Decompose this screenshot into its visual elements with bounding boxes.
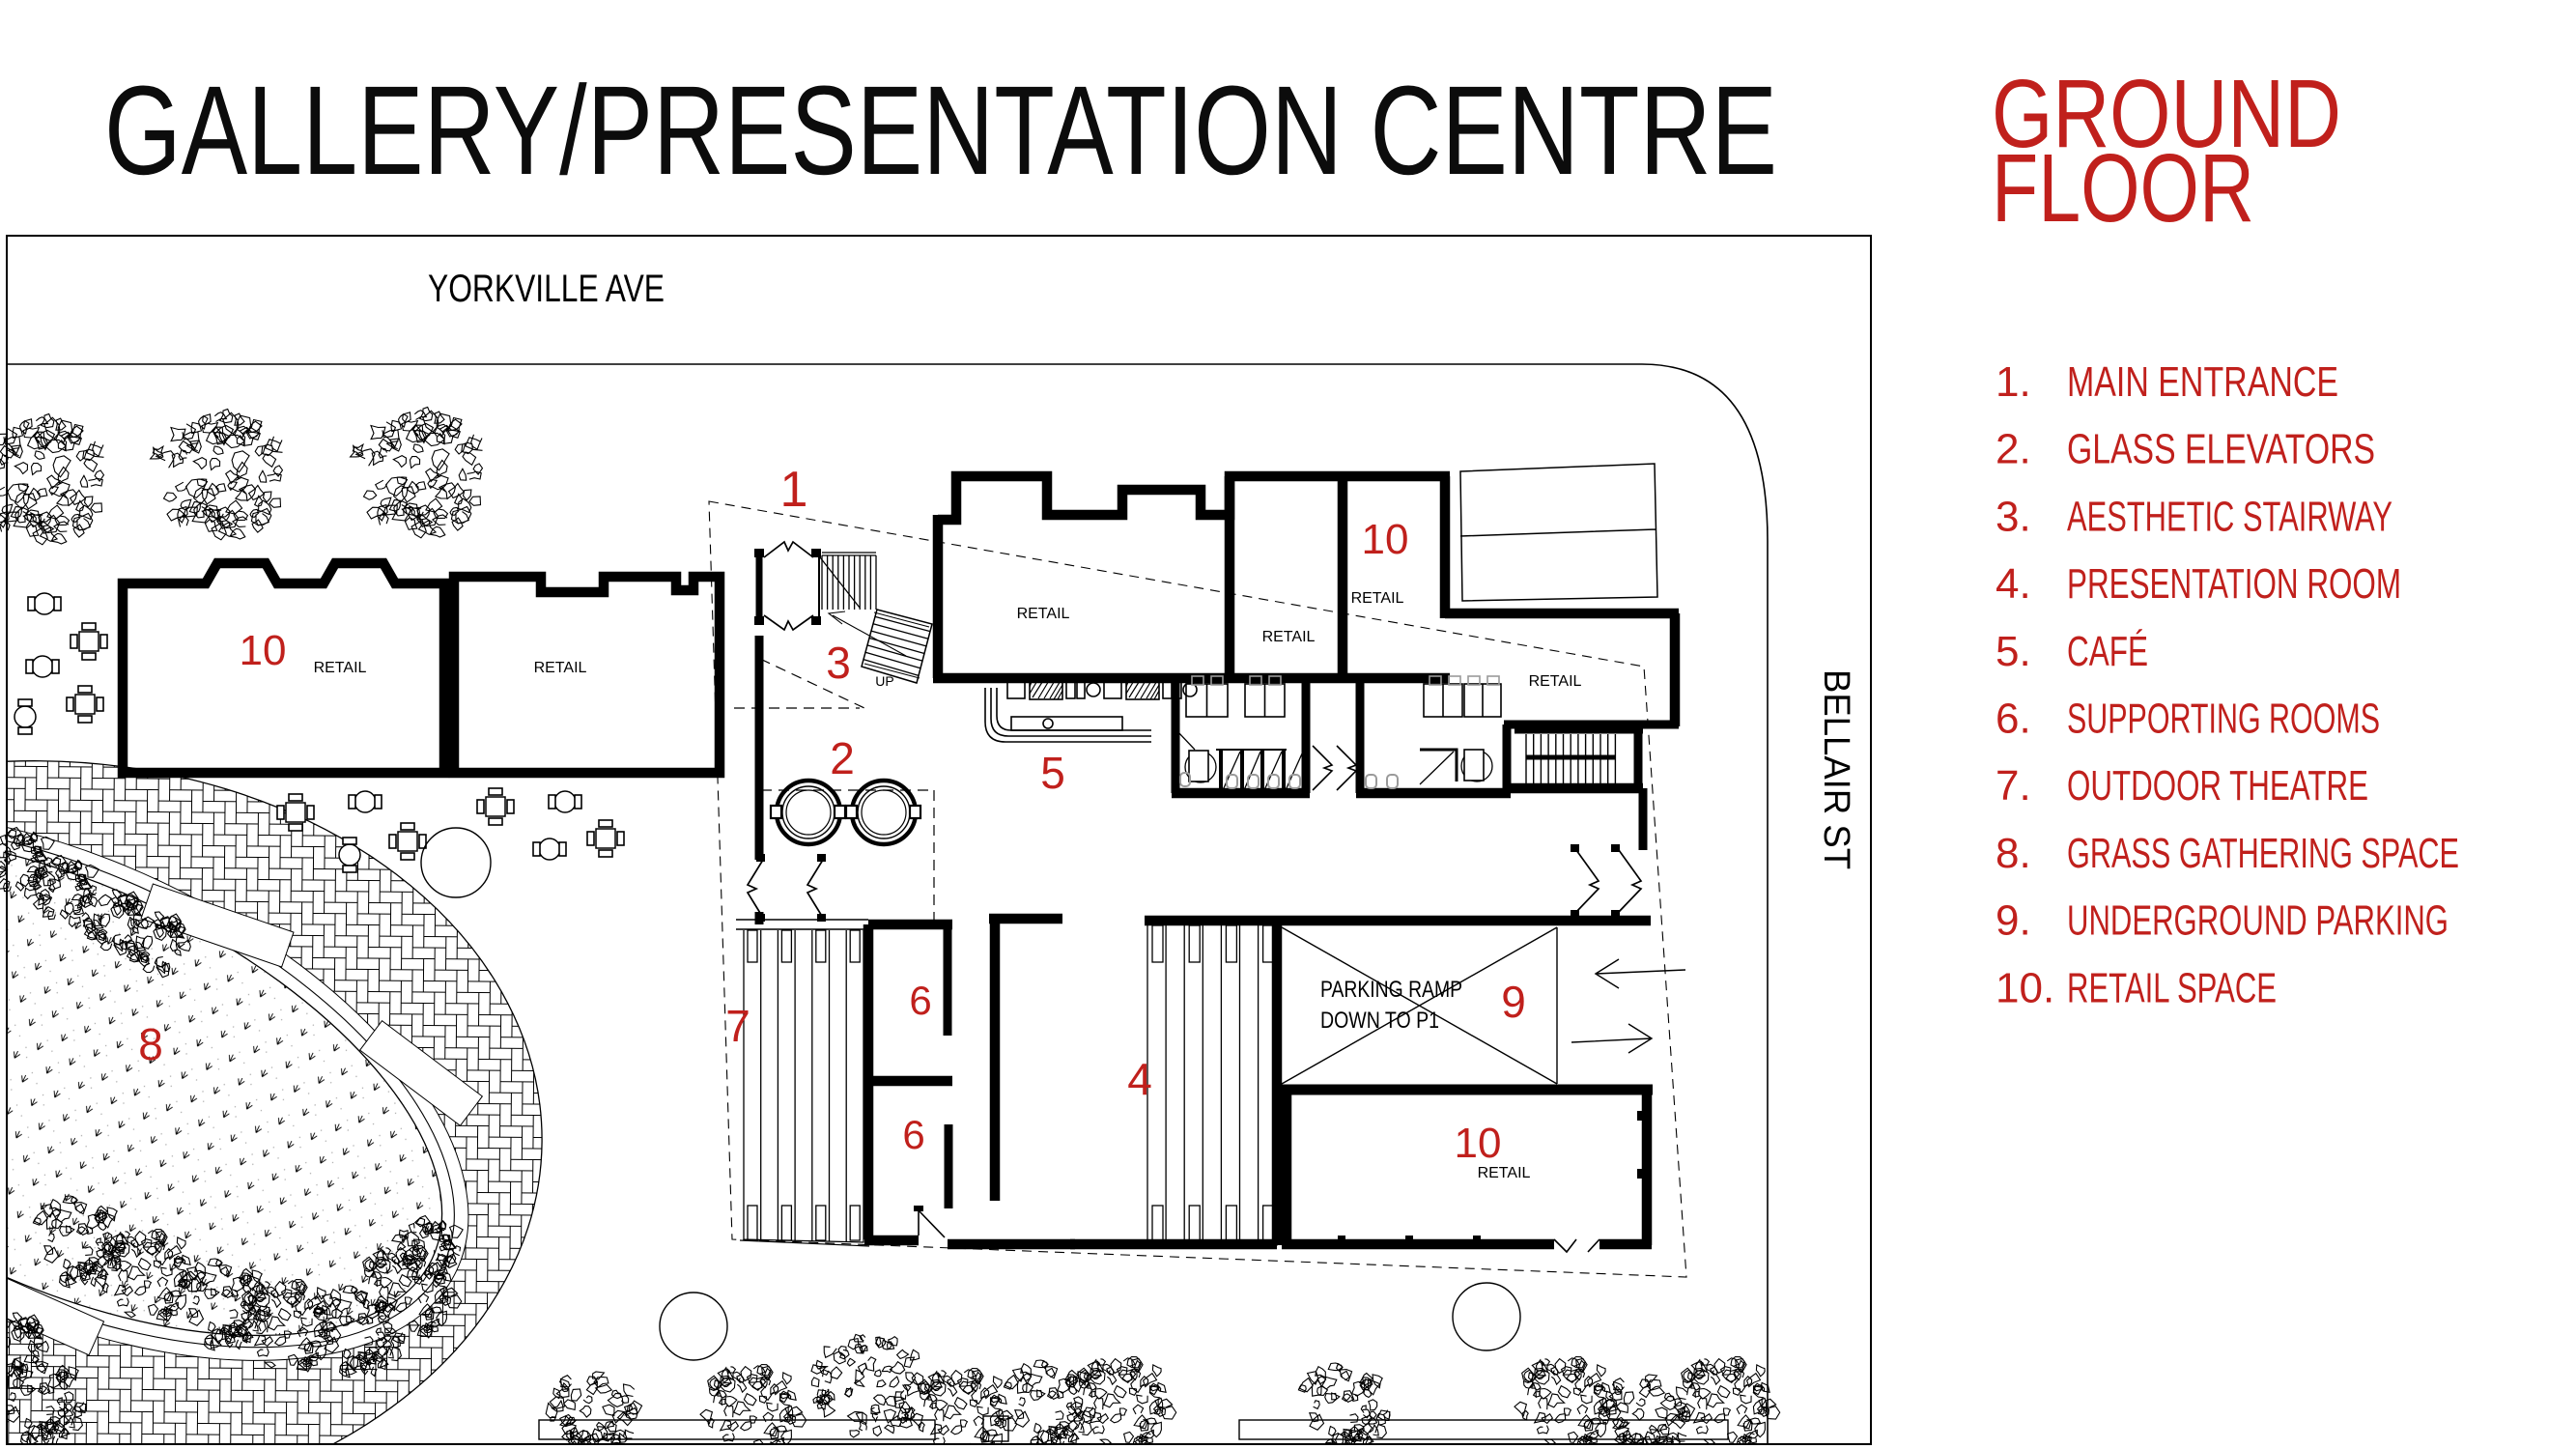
svg-text:DOWN TO P1: DOWN TO P1 — [1320, 1008, 1439, 1034]
svg-text:RETAIL: RETAIL — [534, 660, 587, 676]
svg-text:PARKING RAMP: PARKING RAMP — [1320, 977, 1462, 1003]
svg-text:GRASS GATHERING SPACE: GRASS GATHERING SPACE — [2067, 830, 2459, 877]
svg-text:7: 7 — [725, 1001, 750, 1051]
svg-text:5: 5 — [1040, 748, 1065, 798]
svg-text:8.: 8. — [1996, 830, 2031, 877]
svg-text:2: 2 — [830, 733, 855, 783]
svg-text:7.: 7. — [1996, 762, 2031, 810]
svg-text:GLASS ELEVATORS: GLASS ELEVATORS — [2067, 426, 2375, 473]
svg-text:5.: 5. — [1996, 628, 2031, 675]
svg-text:2.: 2. — [1996, 426, 2031, 473]
svg-text:9: 9 — [1501, 977, 1526, 1027]
svg-text:3.: 3. — [1996, 493, 2031, 540]
svg-text:3: 3 — [826, 638, 851, 688]
svg-text:6: 6 — [909, 978, 931, 1023]
svg-text:AESTHETIC STAIRWAY: AESTHETIC STAIRWAY — [2067, 493, 2392, 540]
svg-text:RETAIL: RETAIL — [1262, 629, 1316, 645]
svg-text:10: 10 — [240, 627, 287, 674]
svg-text:MAIN ENTRANCE: MAIN ENTRANCE — [2067, 358, 2338, 406]
svg-text:1: 1 — [780, 462, 808, 518]
svg-text:RETAIL: RETAIL — [1017, 606, 1070, 622]
svg-text:CAFÉ: CAFÉ — [2067, 628, 2148, 675]
svg-text:4.: 4. — [1996, 560, 2031, 608]
svg-text:YORKVILLE AVE: YORKVILLE AVE — [428, 268, 665, 310]
svg-text:10: 10 — [1362, 516, 1409, 563]
svg-text:RETAIL: RETAIL — [1529, 673, 1582, 690]
svg-text:6: 6 — [902, 1112, 924, 1157]
svg-text:6.: 6. — [1996, 696, 2031, 743]
svg-text:RETAIL: RETAIL — [314, 660, 367, 676]
svg-text:SUPPORTING ROOMS: SUPPORTING ROOMS — [2067, 696, 2380, 743]
svg-text:OUTDOOR THEATRE: OUTDOOR THEATRE — [2067, 762, 2368, 810]
svg-text:PRESENTATION ROOM: PRESENTATION ROOM — [2067, 560, 2401, 608]
svg-text:RETAIL: RETAIL — [1351, 590, 1404, 607]
svg-text:10: 10 — [1455, 1120, 1502, 1167]
svg-text:4: 4 — [1127, 1054, 1152, 1104]
svg-text:RETAIL SPACE: RETAIL SPACE — [2067, 964, 2277, 1011]
svg-text:GALLERY/PRESENTATION CENTRE: GALLERY/PRESENTATION CENTRE — [104, 59, 1777, 201]
svg-text:UP: UP — [875, 673, 893, 689]
svg-text:9.: 9. — [1996, 897, 2031, 945]
svg-text:FLOOR: FLOOR — [1992, 134, 2254, 242]
svg-text:10.: 10. — [1996, 964, 2054, 1011]
svg-text:RETAIL: RETAIL — [1478, 1165, 1531, 1181]
svg-text:8: 8 — [138, 1019, 163, 1069]
svg-text:1.: 1. — [1996, 358, 2031, 406]
svg-text:UNDERGROUND PARKING: UNDERGROUND PARKING — [2067, 897, 2449, 945]
svg-text:BELLAIR ST: BELLAIR ST — [1816, 669, 1856, 869]
